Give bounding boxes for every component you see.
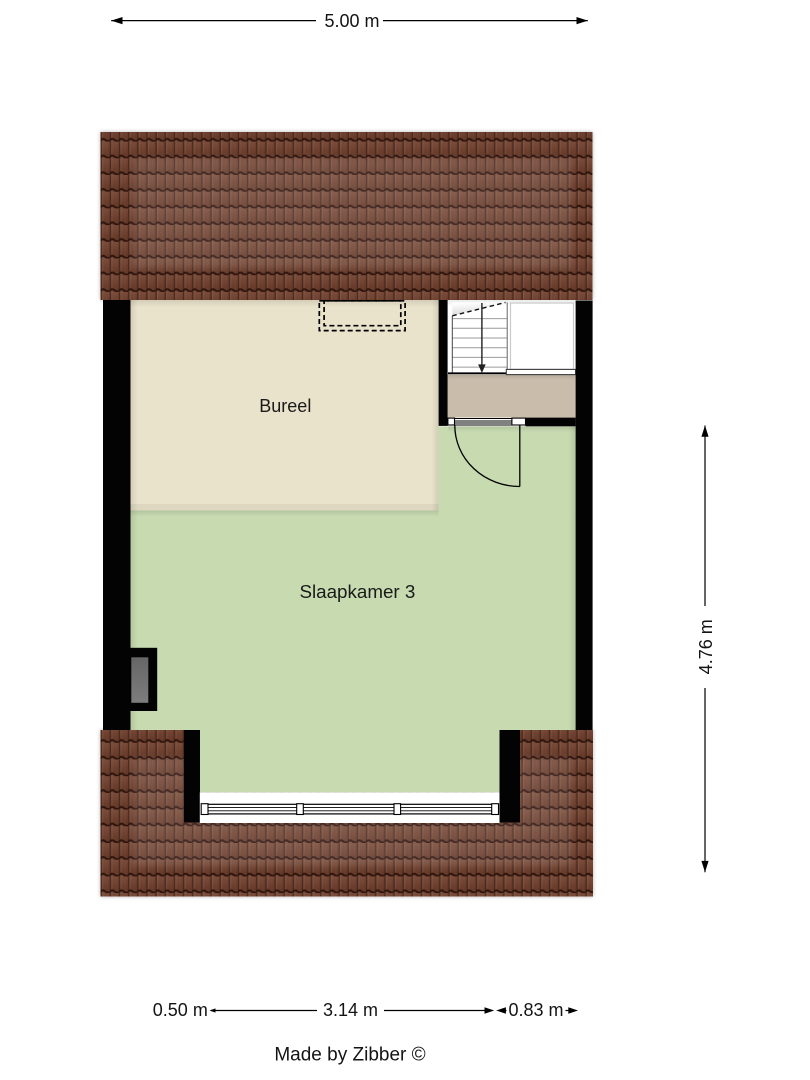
svg-text:0.50 m: 0.50 m [153,1000,208,1020]
svg-text:Bureel: Bureel [259,396,311,416]
svg-text:5.00 m: 5.00 m [324,11,379,31]
svg-text:3.14 m: 3.14 m [323,1000,378,1020]
svg-text:Slaapkamer 3: Slaapkamer 3 [299,581,415,602]
svg-text:4.76 m: 4.76 m [696,619,716,674]
svg-text:Made by Zibber ©: Made by Zibber © [274,1045,425,1066]
svg-text:0.83 m: 0.83 m [508,1000,563,1020]
